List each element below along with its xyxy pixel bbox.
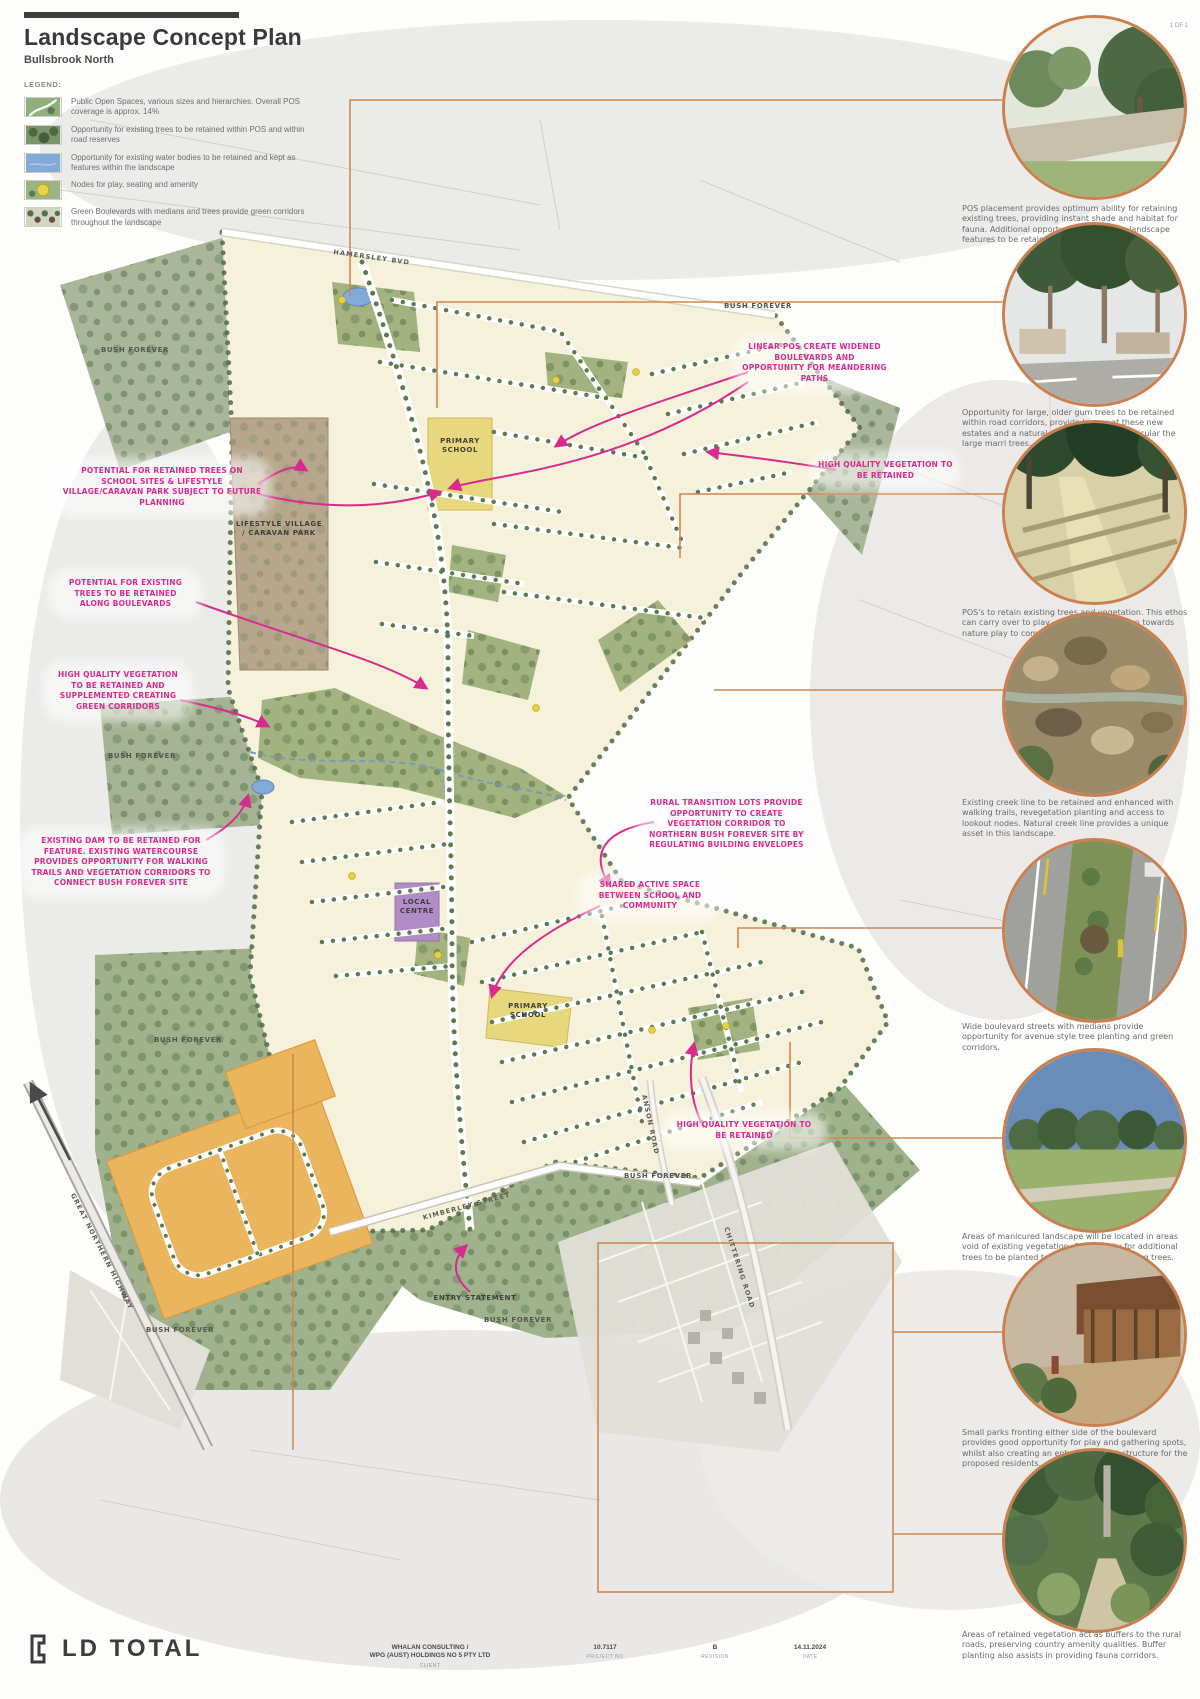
project-no-value: 10.7117 — [570, 1644, 640, 1652]
legend-item-water: Opportunity for existing water bodies to… — [24, 153, 324, 174]
legend-item-label: Opportunity for existing trees to be ret… — [71, 125, 311, 146]
legend-item-retained-trees: Opportunity for existing trees to be ret… — [24, 125, 324, 146]
legend-item-label: Green Boulevards with medians and trees … — [71, 207, 311, 228]
revision-value: B — [685, 1644, 745, 1652]
annotation-retained-trees-school: POTENTIAL FOR RETAINED TREES ON SCHOOL S… — [62, 466, 262, 508]
streetscape-render-art — [1005, 18, 1184, 197]
date-label: DATE — [775, 1654, 845, 1660]
annotation-trees-boulevards: POTENTIAL FOR EXISTING TREES TO BE RETAI… — [58, 578, 193, 610]
ld-total-logo-text: LD TOTAL — [62, 1635, 202, 1663]
manicured-park-photo — [1002, 1048, 1187, 1233]
client-value-line2: WPG (AUST) HOLDINGS NO 5 PTY LTD — [330, 1652, 530, 1660]
revision-label: REVISION — [685, 1654, 745, 1660]
streetscape-render-photo — [1002, 15, 1187, 200]
bush-forever-label: BUSH FOREVER — [102, 752, 182, 761]
legend-item-pos: Public Open Spaces, various sizes and hi… — [24, 97, 324, 118]
legend: Public Open Spaces, various sizes and hi… — [24, 97, 324, 228]
annotation-existing-dam: EXISTING DAM TO BE RETAINED FOR FEATURE.… — [26, 836, 216, 889]
primary-school-2-label: PRIMARY SCHOOL — [496, 1002, 560, 1021]
ld-total-logo: LD TOTAL — [28, 1634, 202, 1664]
legend-item-label: Public Open Spaces, various sizes and hi… — [71, 97, 311, 118]
retained-gum-trees-photo — [1002, 222, 1187, 407]
bush-forever-label: BUSH FOREVER — [148, 1036, 228, 1045]
landscape-concept-plan-sheet: Landscape Concept Plan Bullsbrook North … — [0, 0, 1200, 1699]
page-subtitle: Bullsbrook North — [24, 54, 324, 66]
annotation-high-quality-vegetation-south: HIGH QUALITY VEGETATION TO BE RETAINED — [670, 1120, 818, 1141]
photo-caption: Existing creek line to be retained and e… — [962, 798, 1192, 840]
green-boulevards-swatch-icon — [24, 207, 62, 227]
entry-park-art — [1005, 1245, 1184, 1424]
legend-item-label: Opportunity for existing water bodies to… — [71, 153, 311, 174]
water-bodies-swatch-icon — [24, 153, 62, 173]
page-title: Landscape Concept Plan — [24, 24, 324, 51]
bush-nature-play-photo — [1002, 420, 1187, 605]
annotation-rural-transition-lots: RURAL TRANSITION LOTS PROVIDE OPPORTUNIT… — [644, 798, 809, 851]
ld-total-logo-icon — [28, 1634, 54, 1664]
annotation-shared-active-space: SHARED ACTIVE SPACE BETWEEN SCHOOL AND C… — [586, 880, 714, 912]
lifestyle-village-block — [230, 418, 328, 670]
entry-park-photo — [1002, 1242, 1187, 1427]
play-nodes-swatch-icon — [24, 180, 62, 200]
vegetation-buffer-art — [1005, 1451, 1184, 1630]
annotation-high-quality-vegetation-east: HIGH QUALITY VEGETATION TO BE RETAINED — [818, 460, 953, 481]
title-block: Landscape Concept Plan Bullsbrook North … — [24, 12, 324, 228]
public-open-space-swatch-icon — [24, 97, 62, 117]
entry-statement-label: ENTRY STATEMENT — [420, 1294, 530, 1303]
lifestyle-village-label: LIFESTYLE VILLAGE / CARAVAN PARK — [235, 520, 323, 539]
legend-item-label: Nodes for play, seating and amenity — [71, 180, 311, 190]
annotation-linear-pos: LINEAR POS CREATE WIDENED BOULEVARDS AND… — [742, 342, 887, 384]
bush-forever-label: BUSH FOREVER — [478, 1316, 558, 1325]
client-label: CLIENT — [330, 1663, 530, 1669]
date-value: 14.11.2024 — [775, 1644, 845, 1652]
client-value-line1: WHALAN CONSULTING / — [330, 1644, 530, 1652]
project-no-label: PROJECT NO — [570, 1654, 640, 1660]
bush-forever-label: BUSH FOREVER — [718, 302, 798, 311]
footer-client: WHALAN CONSULTING / WPG (AUST) HOLDINGS … — [330, 1644, 530, 1669]
legend-item-play-nodes: Nodes for play, seating and amenity — [24, 180, 324, 200]
manicured-park-art — [1005, 1051, 1184, 1230]
retained-gum-trees-art — [1005, 225, 1184, 404]
creek-line-photo — [1002, 612, 1187, 797]
local-centre-label: LOCAL CENTRE — [394, 898, 440, 917]
bush-forever-label: BUSH FOREVER — [618, 1172, 698, 1181]
bush-forever-label: BUSH FOREVER — [95, 346, 175, 355]
boulevard-median-art — [1005, 841, 1184, 1020]
primary-school-1-label: PRIMARY SCHOOL — [428, 437, 492, 456]
annotation-high-quality-vegetation-west: HIGH QUALITY VEGETATION TO BE RETAINED A… — [52, 670, 184, 712]
bush-forever-label: BUSH FOREVER — [140, 1326, 220, 1335]
footer-date: 14.11.2024 DATE — [775, 1644, 845, 1660]
title-rule — [24, 12, 239, 18]
vegetation-buffer-photo — [1002, 1448, 1187, 1633]
footer-project-no: 10.7117 PROJECT NO — [570, 1644, 640, 1660]
boulevard-median-photo — [1002, 838, 1187, 1023]
creek-line-art — [1005, 615, 1184, 794]
legend-label: LEGEND: — [24, 80, 324, 89]
footer-revision: B REVISION — [685, 1644, 745, 1660]
legend-item-boulevards: Green Boulevards with medians and trees … — [24, 207, 324, 228]
bush-nature-play-art — [1005, 423, 1184, 602]
footer: LD TOTAL WHALAN CONSULTING / WPG (AUST) … — [0, 1626, 1200, 1686]
retained-trees-swatch-icon — [24, 125, 62, 145]
